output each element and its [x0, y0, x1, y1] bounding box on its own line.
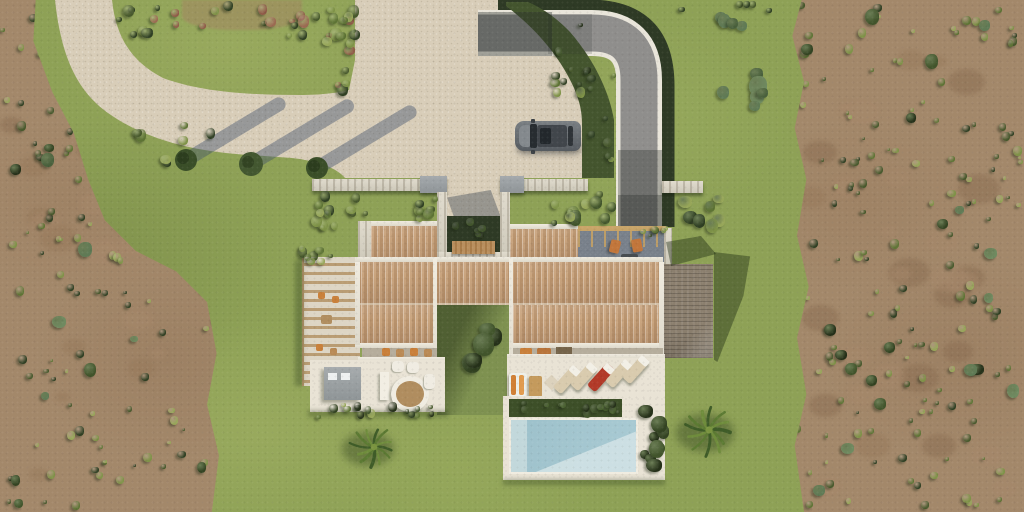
pergola-chair: [318, 292, 325, 299]
hedge-bush: [452, 222, 460, 230]
palm-tree: [346, 419, 402, 475]
courtyard-tree: [473, 333, 494, 356]
shrub-cluster: [128, 118, 224, 174]
hedge-bush: [475, 232, 481, 237]
lawn-tree: [716, 66, 770, 112]
shrub-cluster: [303, 190, 373, 232]
hedge-bush: [603, 116, 609, 122]
hedge-bush: [466, 218, 473, 226]
tree-canopy: [727, 18, 739, 30]
shrub: [766, 8, 771, 13]
porch-chair: [382, 348, 390, 356]
pool-hedge: [509, 399, 622, 417]
shrub-cluster: [296, 244, 336, 270]
roof-upper-left: [371, 221, 437, 262]
hedge-bush: [521, 406, 527, 413]
hedge-bush: [316, 415, 320, 420]
car-rear-glass: [568, 126, 573, 146]
aerial-villa-scene: [0, 0, 1024, 512]
hedge-bush: [597, 404, 604, 410]
shrub: [329, 13, 339, 24]
roof-junction-edge: [659, 262, 664, 358]
shrub: [342, 67, 349, 74]
shrub: [433, 196, 439, 203]
main-roof-left-wing: [355, 305, 437, 345]
tree-canopy: [706, 219, 718, 233]
hedge-bush: [569, 67, 573, 72]
shrub: [565, 212, 576, 222]
shrub: [322, 37, 333, 46]
shrub: [749, 1, 756, 9]
hedge-bush: [616, 410, 620, 414]
shrub: [363, 211, 368, 216]
kitchen-tray: [341, 373, 350, 380]
hedge-bush: [553, 88, 561, 98]
terrace-hedge: [307, 402, 447, 420]
kitchen-tray: [328, 373, 337, 380]
wooden-gate: [452, 241, 495, 254]
hedge-bush: [478, 225, 486, 232]
shrub: [315, 201, 323, 209]
planter-bush: [651, 226, 658, 233]
hedge-bush: [577, 82, 582, 88]
terrace-pillar: [380, 372, 389, 400]
car-sunroof: [540, 128, 551, 144]
courtyard-tree: [465, 353, 482, 368]
hedge-bush: [388, 402, 397, 412]
shrub: [160, 155, 171, 164]
shrub: [316, 209, 324, 217]
shrub: [123, 5, 135, 17]
shrub: [581, 199, 590, 210]
wood-lounger: [529, 376, 542, 397]
shrub: [607, 202, 616, 212]
pergola-chair: [332, 296, 339, 303]
shrub: [328, 254, 333, 259]
tree-canopy: [713, 195, 724, 204]
shrub: [130, 31, 137, 38]
hedge-bush: [556, 49, 562, 56]
shrub: [287, 33, 293, 38]
shrub: [678, 7, 685, 13]
shrub: [317, 258, 324, 265]
shrub: [327, 7, 334, 14]
lounge-chair: [392, 361, 404, 372]
tree-canopy: [749, 101, 760, 112]
hedge-bush: [429, 411, 434, 417]
shrub: [638, 405, 653, 418]
shrub-cluster: [320, 0, 362, 95]
shrub: [416, 215, 424, 223]
shrub-cluster: [672, 0, 790, 14]
outdoor-kitchen: [324, 367, 361, 400]
tree-canopy: [717, 86, 730, 100]
shrub: [150, 15, 158, 23]
shrub: [415, 200, 424, 208]
pool-steps: [511, 420, 527, 472]
hedge-bush: [415, 406, 420, 412]
shrub: [180, 122, 188, 129]
hedge-bush: [583, 404, 589, 412]
shrub: [600, 213, 610, 225]
porch-chair: [410, 348, 418, 356]
planter-bush: [648, 234, 652, 238]
shrub: [590, 196, 602, 209]
shrub: [346, 39, 354, 48]
roof-east-hip-shade: [663, 264, 713, 358]
tree-canopy: [705, 201, 716, 212]
shrub: [298, 30, 307, 40]
shrub: [336, 32, 345, 41]
shrub-cluster: [405, 193, 441, 223]
hedge-bush: [605, 153, 610, 159]
planter-bush: [640, 229, 646, 235]
shrub: [265, 17, 277, 27]
shrub: [173, 21, 180, 28]
shrub: [331, 222, 338, 230]
pergola-chair: [316, 344, 323, 351]
hedge-bush: [365, 406, 371, 413]
hedge-bush: [357, 411, 364, 419]
planter-bush: [661, 228, 666, 233]
daybed-towel: [519, 375, 524, 395]
lounge-chair: [407, 362, 419, 373]
hedge-bush: [603, 138, 612, 146]
shrub: [298, 15, 310, 29]
shrub: [743, 1, 750, 9]
hedge-bush: [587, 75, 596, 82]
shrub: [178, 136, 188, 146]
hedge-bush: [544, 403, 549, 408]
courtyard-trees: [443, 316, 505, 380]
shrub: [312, 12, 320, 21]
shrub: [342, 80, 349, 86]
hedge-bush: [609, 401, 616, 408]
shrub-cluster: [548, 190, 616, 230]
car-mirror: [531, 119, 535, 123]
shrub: [551, 220, 557, 226]
hedge-bush: [329, 404, 338, 413]
hedge-bush: [578, 23, 583, 27]
shrub: [324, 210, 332, 219]
lawn-tree: [668, 190, 726, 234]
pergola-chair: [330, 348, 337, 355]
pergola-table: [321, 315, 332, 324]
shrub: [155, 5, 160, 11]
pergola-shadow: [295, 260, 303, 386]
hedge-bush: [521, 401, 527, 406]
shrub: [551, 200, 560, 210]
hedge-bush: [584, 70, 589, 75]
hedge-bush: [588, 86, 594, 91]
rooftop-chair: [631, 238, 643, 253]
shrub: [199, 23, 206, 29]
hedge-bush: [343, 406, 351, 412]
lounge-chair: [424, 374, 435, 389]
main-roof-right-wing: [513, 305, 663, 345]
shrub: [132, 129, 142, 137]
shrub: [116, 17, 122, 22]
hedge-bush: [588, 131, 595, 139]
porch-chair: [424, 349, 432, 357]
daybed-towel: [511, 375, 516, 395]
hedge-bush: [550, 79, 560, 88]
shrub-cluster: [638, 394, 678, 486]
sun-loungers: [552, 362, 652, 398]
shrub: [171, 9, 180, 16]
tree-canopy: [678, 196, 693, 208]
car-hood: [519, 125, 530, 147]
hedge-bush: [428, 405, 433, 409]
shrub: [423, 209, 434, 219]
shrub: [346, 206, 356, 214]
hedge-bush: [612, 73, 616, 78]
hedge-bush: [576, 87, 586, 98]
shrub: [299, 245, 306, 252]
tree-canopy: [757, 88, 768, 99]
shrub: [206, 128, 216, 139]
lounger-pillow: [585, 362, 598, 375]
entrance-pillar-right: [500, 176, 524, 193]
tree-canopy: [693, 214, 706, 228]
shrub: [307, 258, 315, 265]
roof-west-edge: [355, 262, 360, 345]
hedge-bush: [560, 402, 566, 408]
shrub: [223, 1, 233, 11]
car-mirror: [531, 150, 535, 154]
shrub: [315, 247, 323, 254]
shrub-cluster: [640, 225, 670, 239]
shrub: [291, 22, 298, 29]
shrub: [646, 459, 662, 472]
shrub: [141, 28, 153, 39]
hedge-bush: [560, 78, 567, 85]
palm-tree: [678, 398, 740, 462]
parked-car: [515, 119, 583, 155]
shrub: [649, 440, 664, 457]
car-windshield: [530, 124, 537, 148]
porch-chair: [396, 349, 404, 357]
shrub: [651, 416, 667, 432]
entrance-pillar-left: [420, 176, 447, 193]
shrub: [211, 7, 219, 16]
shrub: [352, 193, 361, 203]
shrub: [339, 17, 348, 25]
shrub: [258, 4, 268, 15]
